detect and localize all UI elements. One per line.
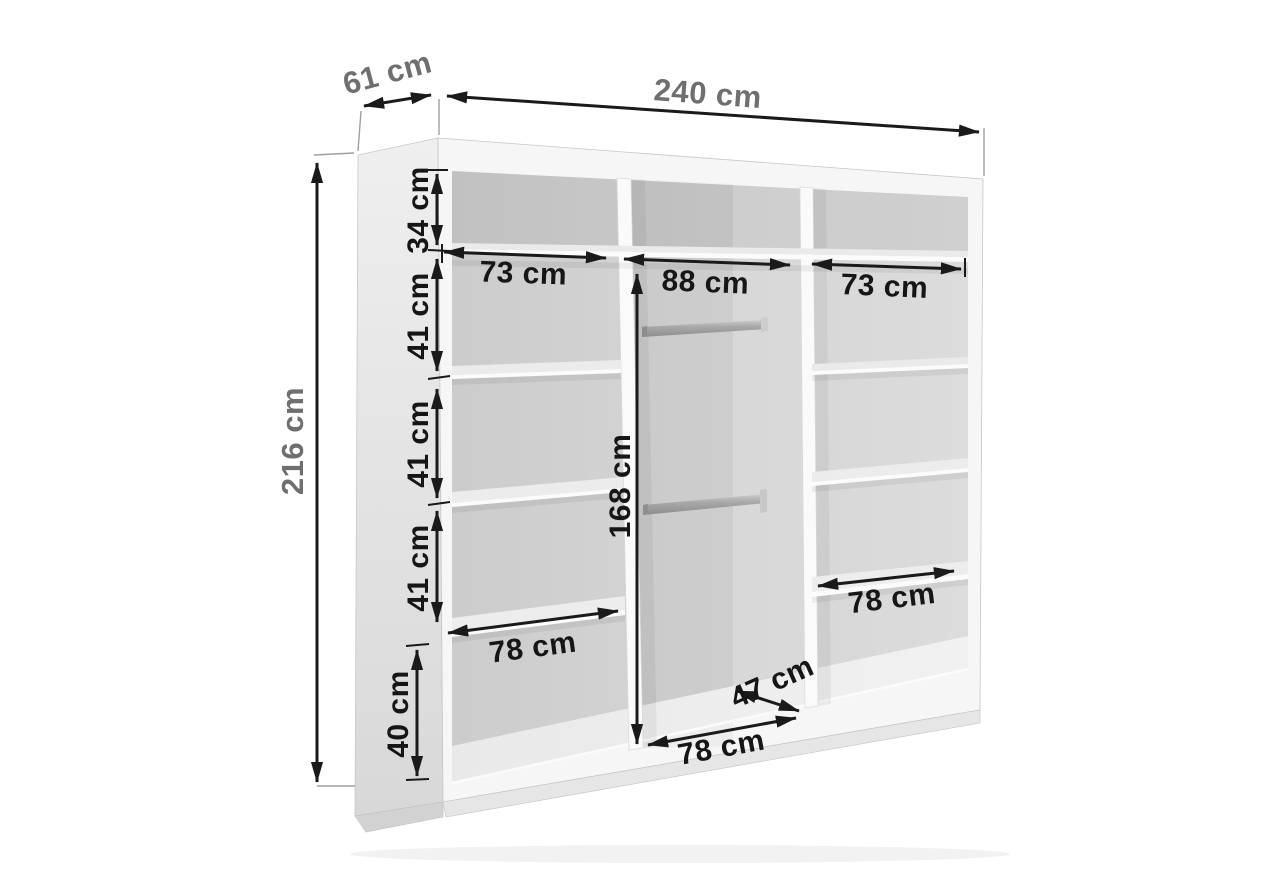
label-depth-61: 61 cm: [339, 44, 435, 101]
tick: [406, 779, 429, 780]
wardrobe-body: [355, 138, 983, 832]
label-41-c: 41 cm: [402, 524, 435, 612]
label-left-width-73: 73 cm: [479, 255, 568, 291]
label-width-240: 240 cm: [653, 72, 763, 115]
label-top-34: 34 cm: [402, 166, 435, 254]
rail-end-cap: [643, 504, 648, 515]
rail-bracket: [760, 489, 767, 513]
label-right-width-73: 73 cm: [840, 268, 929, 305]
rail-bracket: [761, 317, 768, 332]
label-hanging-168: 168 cm: [604, 434, 637, 539]
label-middle-width-88: 88 cm: [661, 264, 750, 300]
rail-end-cap: [642, 326, 647, 337]
label-height-216: 216 cm: [275, 387, 310, 495]
label-41-a: 41 cm: [402, 272, 435, 360]
label-41-b: 41 cm: [402, 400, 435, 488]
floor-shadow: [350, 845, 1010, 863]
extension-line: [314, 153, 354, 155]
wardrobe-dimension-diagram: 61 cm 240 cm 216 cm 34 cm 41 cm 41 cm 41…: [0, 0, 1280, 880]
label-40: 40 cm: [382, 670, 415, 758]
extension-line: [358, 111, 361, 151]
dim-arrow-depth-61: [364, 95, 431, 106]
diagram-canvas: 61 cm 240 cm 216 cm 34 cm 41 cm 41 cm 41…: [0, 0, 1280, 880]
